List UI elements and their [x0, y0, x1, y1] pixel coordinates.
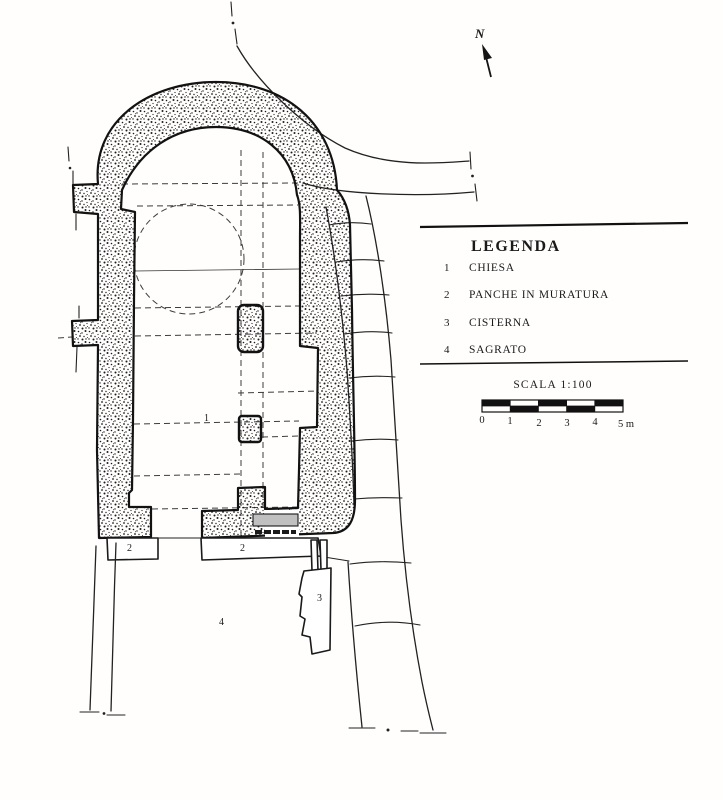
plan-label-sagrato: 4 — [219, 617, 224, 628]
legend-item-label-panche: PANCHE IN MURATURA — [469, 289, 609, 301]
road-lower-end-tick — [475, 184, 477, 201]
church-wall-mass — [72, 82, 355, 538]
legend-rule-bottom — [420, 361, 688, 364]
legend-item-num: 4 — [444, 344, 450, 356]
bench-left — [107, 538, 158, 560]
dome-projection-circle — [134, 204, 244, 314]
legend-title: LEGENDA — [471, 238, 561, 255]
cistern-channel-left — [311, 540, 318, 571]
north-arrow-head — [482, 44, 492, 60]
legend-item-num: 3 — [444, 317, 450, 329]
legend-item-label-chiesa: CHIESA — [469, 262, 515, 274]
scale-tick-3: 3 — [564, 418, 569, 429]
legend-rule-top — [420, 223, 688, 227]
sagrato-boundaries — [80, 543, 125, 715]
legend-item-label-sagrato: SAGRATO — [469, 344, 527, 356]
pillar-small — [239, 416, 261, 442]
legend-item-num: 2 — [444, 289, 450, 301]
legend-item-label-cisterna: CISTERNA — [469, 317, 531, 329]
step-gray — [253, 514, 298, 526]
scale-tick-4: 4 — [592, 417, 598, 428]
site-plan-figure: 1 2 2 3 4 N LEGENDA 1 CHIESA 2 PANCHE IN… — [0, 0, 723, 800]
scale-tick-1: 1 — [507, 416, 512, 427]
path-left-edge-lower — [348, 562, 362, 727]
facade-step-detail — [253, 510, 299, 537]
cistern-body — [299, 568, 331, 654]
north-arrow-shaft — [486, 57, 491, 77]
scale-tick-5m: 5 m — [618, 419, 634, 430]
scanned-plan-page: 1 2 2 3 4 N LEGENDA 1 CHIESA 2 PANCHE IN… — [0, 0, 723, 800]
scale-title: SCALA 1:100 — [513, 379, 592, 391]
north-arrow: N — [474, 26, 492, 77]
boundary-dot — [387, 729, 390, 732]
scale-tick-2: 2 — [536, 418, 541, 429]
plan-label-chiesa: 1 — [204, 413, 209, 424]
legend-item-num: 1 — [444, 262, 450, 274]
scale-bar: SCALA 1:100 0 1 2 3 4 5 m — [479, 379, 634, 430]
plan-label-bench-left: 2 — [127, 543, 132, 554]
path-right-edge — [366, 196, 433, 730]
scale-bar-segments — [482, 400, 623, 412]
cistern-channel-right — [320, 540, 327, 570]
boundary-dot — [471, 175, 474, 178]
boundary-dash-dot-top — [231, 2, 237, 44]
pillar-large — [238, 305, 263, 352]
scale-tick-labels: 0 1 2 3 4 5 m — [479, 415, 634, 430]
scale-tick-0: 0 — [479, 415, 484, 426]
plan-label-cistern: 3 — [317, 593, 322, 604]
legend-box: LEGENDA 1 CHIESA 2 PANCHE IN MURATURA 3 … — [420, 223, 688, 364]
north-label: N — [474, 26, 485, 41]
plan-label-bench-right: 2 — [240, 543, 245, 554]
road-upper-end-tick — [470, 152, 471, 169]
